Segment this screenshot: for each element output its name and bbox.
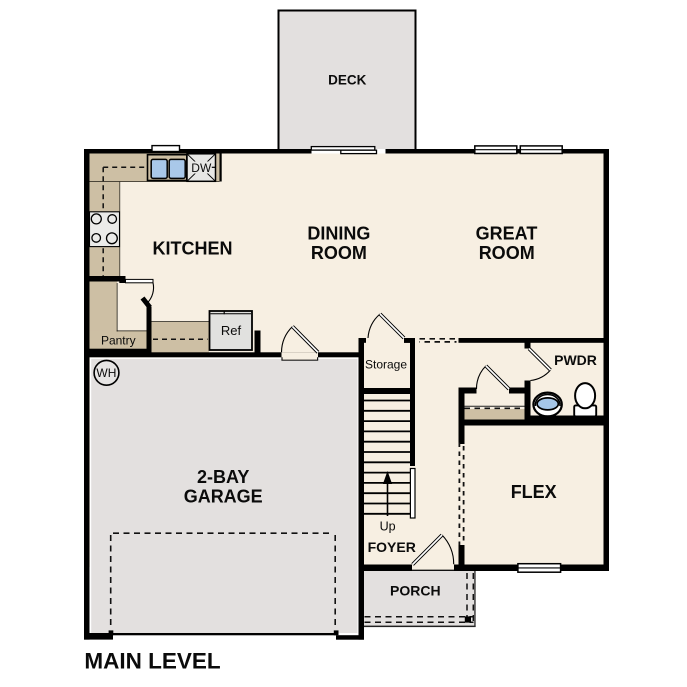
- svg-text:Storage: Storage: [365, 358, 407, 372]
- svg-text:FLEX: FLEX: [511, 482, 557, 502]
- svg-text:GREAT: GREAT: [476, 223, 538, 243]
- svg-text:DECK: DECK: [328, 72, 367, 87]
- svg-text:MAIN LEVEL: MAIN LEVEL: [84, 649, 221, 674]
- svg-text:ROOM: ROOM: [479, 243, 535, 263]
- svg-text:DW: DW: [191, 161, 212, 175]
- svg-text:PWDR: PWDR: [554, 352, 597, 368]
- svg-text:WH: WH: [96, 366, 116, 380]
- svg-text:ROOM: ROOM: [311, 243, 367, 263]
- svg-text:PORCH: PORCH: [390, 583, 441, 599]
- svg-text:DINING: DINING: [307, 223, 370, 243]
- svg-text:Up: Up: [380, 520, 396, 534]
- svg-text:Pantry: Pantry: [101, 333, 136, 347]
- svg-text:GARAGE: GARAGE: [184, 486, 263, 506]
- svg-text:KITCHEN: KITCHEN: [153, 239, 233, 259]
- svg-text:Ref: Ref: [221, 323, 242, 338]
- svg-text:2-BAY: 2-BAY: [197, 467, 249, 487]
- svg-text:FOYER: FOYER: [368, 539, 416, 555]
